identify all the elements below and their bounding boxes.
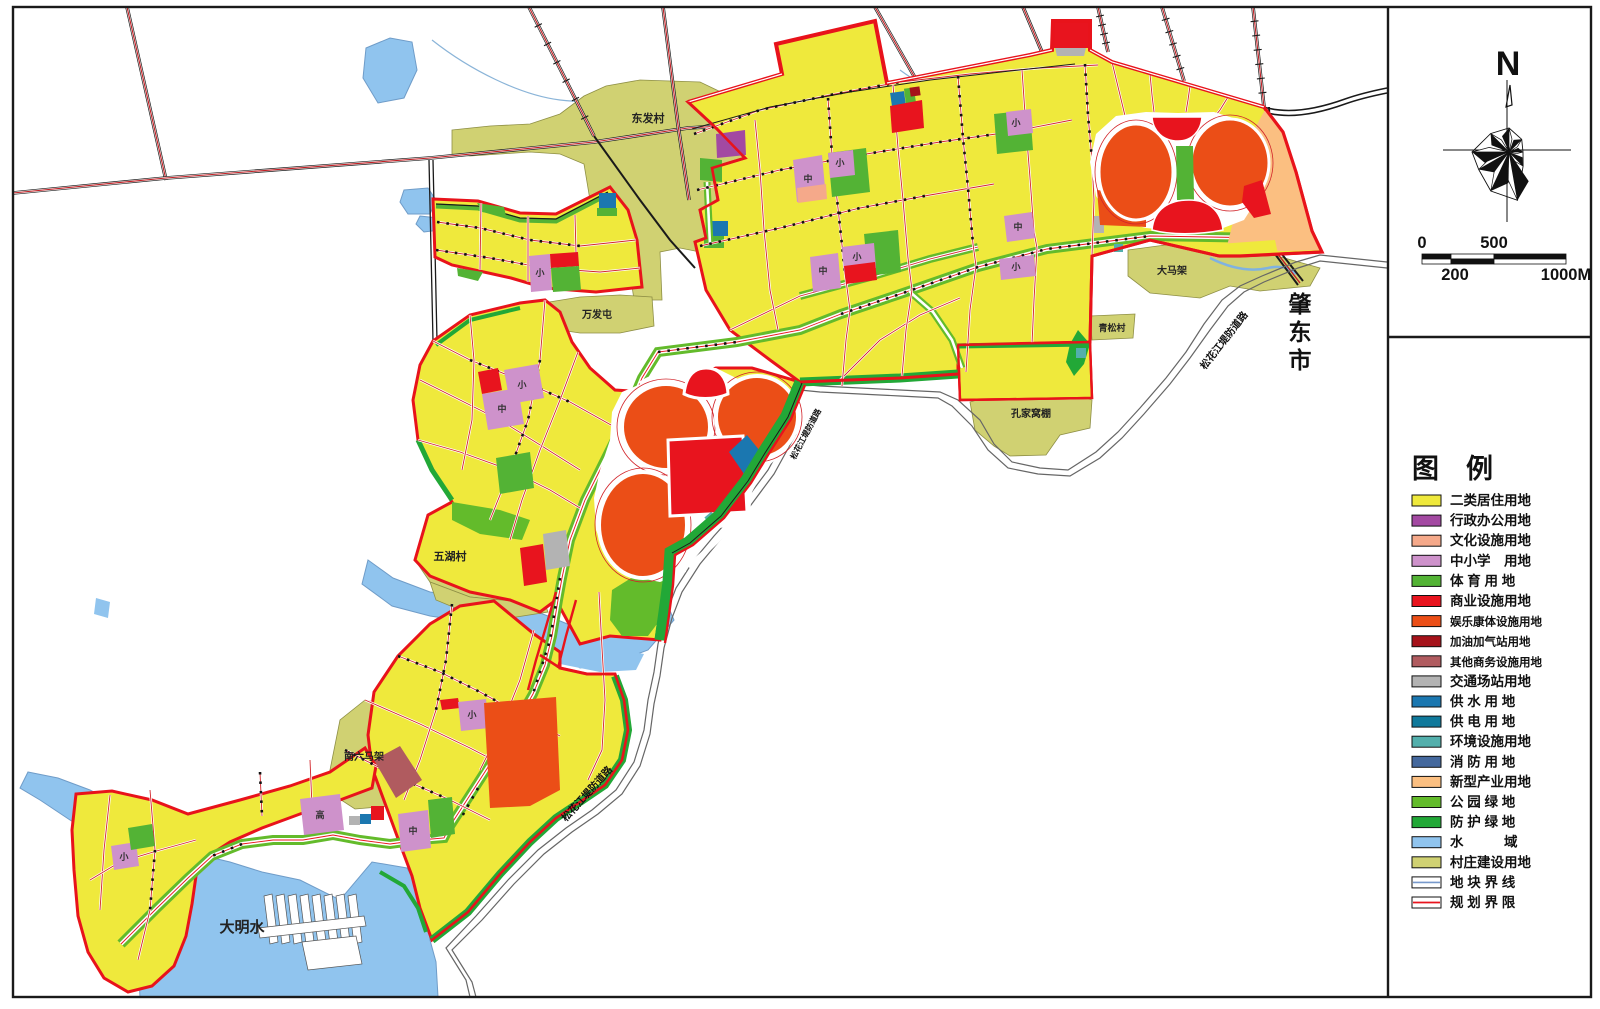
svg-text:大马架: 大马架 — [1157, 264, 1187, 277]
svg-text:500: 500 — [1480, 234, 1508, 252]
svg-text:中: 中 — [818, 265, 827, 276]
svg-text:二类居住用地: 二类居住用地 — [1450, 492, 1531, 508]
svg-text:中: 中 — [408, 825, 417, 836]
svg-text:五湖村: 五湖村 — [434, 549, 467, 563]
svg-text:加油加气站用地: 加油加气站用地 — [1449, 635, 1531, 649]
svg-text:其他商务设施用地: 其他商务设施用地 — [1450, 655, 1542, 669]
svg-text:供 水 用 地: 供 水 用 地 — [1449, 693, 1516, 709]
svg-text:0: 0 — [1417, 234, 1426, 252]
svg-text:中: 中 — [803, 173, 812, 184]
svg-text:青松村: 青松村 — [1098, 322, 1125, 333]
svg-text:交通场站用地: 交通场站用地 — [1450, 673, 1531, 689]
svg-text:N: N — [1496, 45, 1521, 83]
svg-text:200: 200 — [1441, 266, 1469, 284]
svg-text:防 护 绿 地: 防 护 绿 地 — [1450, 814, 1516, 830]
svg-text:小: 小 — [466, 709, 476, 720]
svg-text:中: 中 — [497, 403, 506, 414]
svg-text:行政办公用地: 行政办公用地 — [1449, 512, 1531, 528]
svg-text:小: 小 — [534, 267, 544, 278]
svg-text:规 划 界 限: 规 划 界 限 — [1450, 894, 1516, 910]
svg-text:高: 高 — [315, 809, 324, 820]
svg-text:东: 东 — [1289, 319, 1312, 345]
svg-text:公 园 绿 地: 公 园 绿 地 — [1450, 794, 1516, 810]
svg-text:1000M: 1000M — [1541, 266, 1591, 284]
svg-text:娱乐康体设施用地: 娱乐康体设施用地 — [1450, 615, 1542, 629]
svg-text:环境设施用地: 环境设施用地 — [1450, 733, 1531, 749]
svg-text:小: 小 — [851, 251, 861, 262]
svg-text:村庄建设用地: 村庄建设用地 — [1450, 854, 1531, 870]
svg-text:市: 市 — [1289, 347, 1312, 373]
svg-text:小: 小 — [834, 157, 844, 168]
svg-text:水 域: 水 域 — [1450, 834, 1518, 850]
svg-text:商业设施用地: 商业设施用地 — [1450, 593, 1531, 609]
svg-text:文化设施用地: 文化设施用地 — [1450, 532, 1531, 548]
svg-text:中小学 用地: 中小学 用地 — [1450, 552, 1531, 568]
svg-text:小: 小 — [1010, 261, 1020, 272]
svg-text:图 例: 图 例 — [1412, 454, 1493, 484]
svg-text:小: 小 — [1010, 117, 1020, 128]
svg-text:肇: 肇 — [1289, 291, 1313, 317]
svg-text:孔家窝棚: 孔家窝棚 — [1011, 407, 1051, 420]
svg-text:中: 中 — [1013, 221, 1022, 232]
svg-text:消 防 用 地: 消 防 用 地 — [1450, 753, 1516, 769]
svg-text:南六马架: 南六马架 — [344, 750, 384, 763]
svg-text:东发村: 东发村 — [632, 111, 665, 125]
svg-text:体 育 用 地: 体 育 用 地 — [1450, 572, 1516, 588]
svg-text:小: 小 — [118, 851, 128, 862]
svg-text:大明水: 大明水 — [219, 918, 265, 936]
svg-text:万发屯: 万发屯 — [581, 308, 612, 321]
svg-text:地 块 界 线: 地 块 界 线 — [1450, 874, 1516, 890]
svg-text:供 电 用 地: 供 电 用 地 — [1449, 713, 1516, 729]
svg-text:小: 小 — [516, 379, 526, 390]
svg-text:新型产业用地: 新型产业用地 — [1450, 773, 1531, 789]
